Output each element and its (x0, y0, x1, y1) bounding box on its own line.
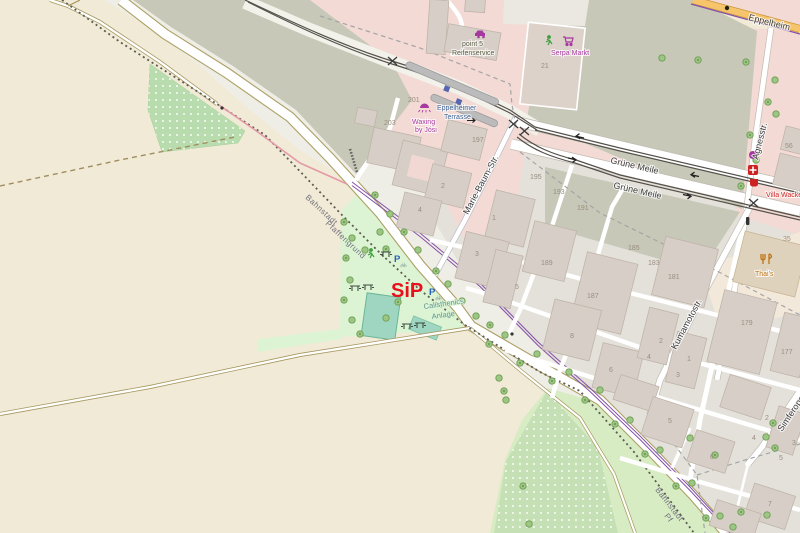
svg-text:5: 5 (668, 418, 672, 425)
svg-text:1: 1 (492, 215, 496, 222)
svg-text:177: 177 (781, 349, 793, 356)
svg-text:SiP: SiP (391, 280, 423, 302)
svg-text:4: 4 (647, 354, 651, 361)
svg-text:point 5: point 5 (462, 41, 483, 48)
svg-text:179: 179 (741, 320, 753, 327)
svg-text:201: 201 (408, 97, 420, 104)
svg-text:7: 7 (768, 501, 772, 508)
svg-text:35: 35 (783, 236, 791, 243)
svg-text:191: 191 (577, 205, 589, 212)
svg-text:6: 6 (710, 454, 714, 461)
svg-text:3: 3 (475, 251, 479, 258)
svg-text:189: 189 (541, 260, 553, 267)
svg-text:8: 8 (570, 333, 574, 340)
svg-text:Terrasse: Terrasse (444, 114, 471, 121)
svg-text:195: 195 (530, 174, 542, 181)
svg-text:Serpa Markt: Serpa Markt (551, 50, 589, 57)
svg-text:3: 3 (792, 440, 796, 447)
svg-text:2: 2 (765, 415, 769, 422)
svg-text:2: 2 (659, 338, 663, 345)
svg-text:197: 197 (472, 137, 484, 144)
svg-text:21: 21 (541, 63, 549, 70)
svg-text:183: 183 (648, 260, 660, 267)
svg-text:4: 4 (752, 435, 756, 442)
svg-text:187: 187 (587, 293, 599, 300)
svg-text:203: 203 (384, 120, 396, 127)
svg-text:Reifenservice: Reifenservice (452, 50, 495, 57)
svg-text:5: 5 (779, 455, 783, 462)
svg-text:🚲: 🚲 (400, 262, 407, 268)
svg-text:Eppelheimer: Eppelheimer (437, 105, 477, 112)
svg-text:193: 193 (553, 189, 565, 196)
svg-text:2: 2 (441, 183, 445, 190)
svg-text:181: 181 (668, 274, 680, 281)
svg-text:6: 6 (609, 367, 613, 374)
svg-text:3: 3 (676, 372, 680, 379)
svg-text:by Jósi: by Jósi (415, 127, 437, 134)
svg-text:Thai’s: Thai’s (755, 271, 774, 278)
svg-text:4: 4 (418, 207, 422, 214)
svg-text:56: 56 (785, 143, 793, 150)
svg-text:185: 185 (628, 245, 640, 252)
svg-text:Waxing: Waxing (412, 119, 435, 126)
svg-text:1: 1 (687, 356, 691, 363)
svg-text:5: 5 (515, 284, 519, 291)
svg-text:Villa Wacke: Villa Wacke (766, 192, 800, 199)
